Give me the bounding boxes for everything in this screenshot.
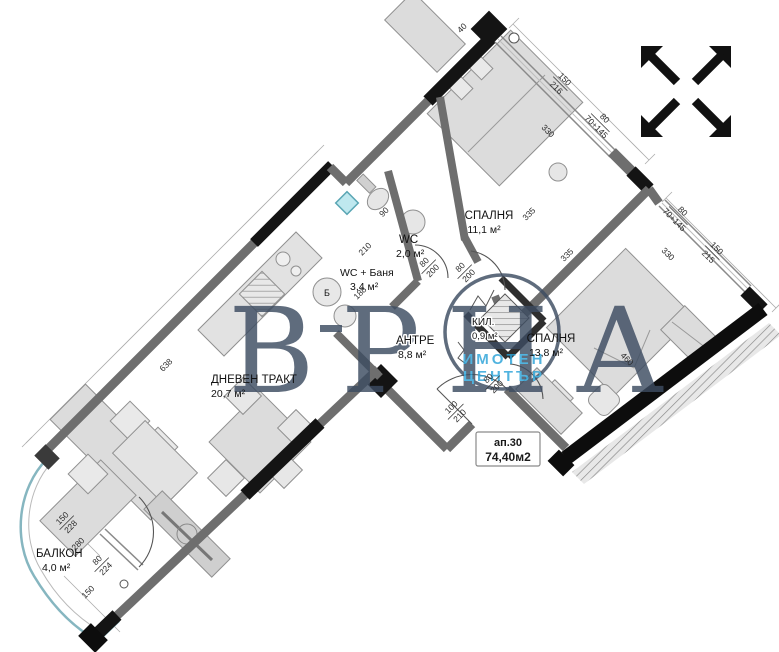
nightstand [549, 163, 567, 181]
svg-text:0,9 м²: 0,9 м² [472, 331, 498, 342]
watermark-text: ВРНА [228, 282, 690, 420]
kitchen-sink [276, 252, 290, 266]
watermark-line2: ЦЕНТЪР [463, 368, 545, 385]
room-label-hall: АНТРЕ [396, 335, 435, 347]
room-label-bedroom2: СПАЛНЯ [527, 333, 576, 345]
bath-window [336, 192, 359, 215]
room-label-bedroom1: СПАЛНЯ [465, 210, 514, 222]
wardrobe [385, 0, 466, 72]
svg-text:8,8 м²: 8,8 м² [398, 349, 427, 361]
svg-text:210: 210 [356, 240, 373, 257]
room-label-closet: КИЛ. [472, 317, 494, 328]
svg-text:40: 40 [455, 21, 469, 35]
room-label-living: ДНЕВЕН ТРАКТ [211, 374, 297, 386]
unit-area: 74,40м2 [485, 450, 531, 464]
svg-text:13,8 м²: 13,8 м² [529, 347, 564, 359]
floor-plan-page: ВРНА ИМОТЕН ЦЕНТЪР СПАЛНЯ 11,1 м² СПАЛНЯ… [0, 0, 779, 652]
svg-text:335: 335 [520, 205, 537, 222]
svg-text:20,7 м²: 20,7 м² [211, 388, 246, 400]
svg-text:4,0 м²: 4,0 м² [42, 562, 71, 574]
svg-text:330: 330 [660, 245, 677, 262]
unit-number: ап.30 [494, 437, 522, 449]
floor-plan-drawing: ВРНА ИМОТЕН ЦЕНТЪР СПАЛНЯ 11,1 м² СПАЛНЯ… [0, 0, 779, 652]
unit-label-box: ап.30 74,40м2 [476, 432, 540, 466]
svg-text:638: 638 [157, 356, 174, 373]
boiler-label: Б [324, 288, 330, 298]
room-label-bath: WC + Баня [340, 267, 394, 279]
watermark: ВРНА ИМОТЕН ЦЕНТЪР [228, 275, 690, 420]
svg-text:150: 150 [79, 583, 96, 600]
svg-text:11,1 м²: 11,1 м² [467, 224, 501, 236]
room-label-wc: WC [399, 234, 418, 246]
expand-arrows-icon[interactable] [641, 46, 731, 137]
